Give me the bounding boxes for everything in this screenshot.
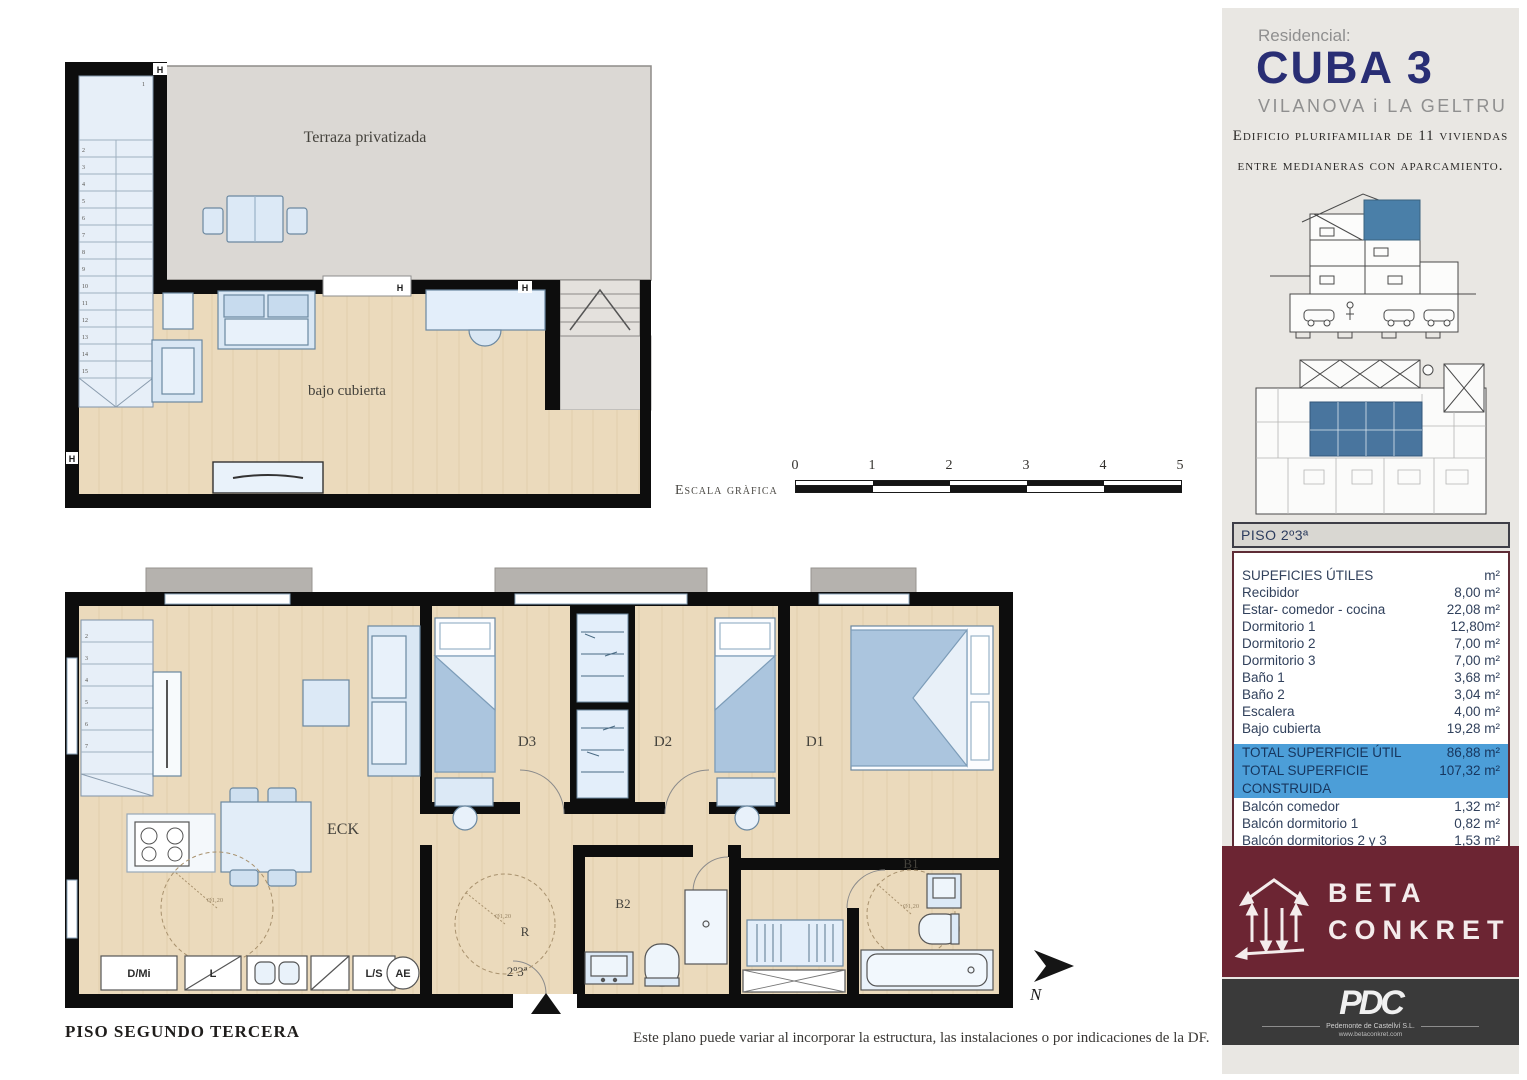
diameter-label: Ø1,20 xyxy=(495,913,511,920)
row-label: TOTAL SUPERFICIE ÚTIL xyxy=(1242,744,1402,762)
living-label: ECK xyxy=(327,821,359,838)
pdc-logo-block: PDC Pedemonte de Castellví S.L. www.beta… xyxy=(1222,979,1519,1045)
upper-floor-plan: 1 2 3 4 5 6 7 8 9 10 11 12 13 14 15 xyxy=(65,62,659,508)
row-label: Balcón comedor xyxy=(1242,798,1340,815)
scale-segment xyxy=(1104,481,1181,485)
scale-segment xyxy=(1104,486,1181,492)
bedroom3-label: D3 xyxy=(518,734,536,750)
scale-bar xyxy=(795,480,1182,493)
stair-number: 9 xyxy=(82,267,85,273)
graphic-scale: Escala gràfica 0 1 2 3 4 5 xyxy=(675,456,1190,500)
window xyxy=(165,594,290,604)
table-row: Estar- comedor - cocina22,08 m² xyxy=(1234,601,1508,618)
armchair xyxy=(152,340,202,402)
north-label: N xyxy=(1029,985,1043,1004)
stove xyxy=(135,822,189,866)
stair-number: 6 xyxy=(85,722,88,728)
divider xyxy=(1421,1026,1479,1027)
bed-d1 xyxy=(851,626,993,770)
project-name: CUBA 3 xyxy=(1256,42,1434,94)
corridor-wardrobe xyxy=(743,920,845,992)
appliance-label: L xyxy=(210,968,217,980)
scale-tick: 5 xyxy=(1170,458,1190,474)
stair-number: 11 xyxy=(82,301,88,307)
bedroom2-label: D2 xyxy=(654,734,672,750)
row-value: 4,00 m² xyxy=(1454,703,1500,720)
scale-segment xyxy=(1027,486,1104,492)
terrace-area xyxy=(153,66,651,280)
hinge-icon: H xyxy=(157,65,164,75)
table-row: Dormitorio 37,00 m² xyxy=(1234,652,1508,669)
stair-number: 2 xyxy=(82,148,85,154)
row-value: 7,00 m² xyxy=(1454,635,1500,652)
scale-tick: 3 xyxy=(1016,458,1036,474)
appliance-label: D/Mi xyxy=(127,968,150,980)
row-label: SUPEFICIES ÚTILES xyxy=(1242,567,1373,584)
stair-number: 7 xyxy=(82,233,85,239)
window xyxy=(67,658,77,754)
row-value: 107,32 m² xyxy=(1439,762,1500,798)
row-value: 1,32 m² xyxy=(1454,798,1500,815)
stair-number: 1 xyxy=(142,82,145,88)
plan-sheet: 1 2 3 4 5 6 7 8 9 10 11 12 13 14 15 xyxy=(0,0,1527,1080)
stair-number: 5 xyxy=(85,700,88,706)
table-row: Dormitorio 27,00 m² xyxy=(1234,635,1508,652)
page-title: PISO SEGUNDO TERCERA xyxy=(65,1022,300,1042)
pdc-subtitle-row: Pedemonte de Castellví S.L. xyxy=(1262,1023,1479,1030)
window xyxy=(67,880,77,938)
table-body: SUPEFICIES ÚTILESm² Recibidor8,00 m² Est… xyxy=(1232,551,1510,871)
living-staircase: 2 3 4 5 6 7 xyxy=(81,620,153,796)
bed-d2 xyxy=(715,618,775,772)
stair-number: 15 xyxy=(82,369,88,375)
dining-set xyxy=(221,788,311,886)
pdc-url: www.betaconkret.com xyxy=(1339,1031,1403,1038)
sofa xyxy=(218,291,315,349)
table-row: Dormitorio 112,80m² xyxy=(1234,618,1508,635)
key-plan-drawing xyxy=(1248,350,1493,522)
staircase: 1 2 3 4 5 6 7 8 9 10 11 12 13 14 15 xyxy=(79,76,153,407)
table-row: SUPEFICIES ÚTILESm² xyxy=(1234,567,1508,584)
row-label: Bajo cubierta xyxy=(1242,720,1321,737)
appliance-label: L/S xyxy=(365,968,382,980)
bed-d3 xyxy=(435,618,495,772)
pdc-logo: PDC xyxy=(1339,986,1402,1020)
unit-highlight-keyplan xyxy=(1310,402,1422,456)
diameter-label: Ø1,20 xyxy=(207,897,223,904)
coffee-table xyxy=(303,680,349,726)
north-arrow-icon xyxy=(1034,950,1074,982)
row-value: m² xyxy=(1484,567,1500,584)
scale-tick: 4 xyxy=(1093,458,1113,474)
stair-number: 14 xyxy=(82,352,88,358)
row-label: Dormitorio 2 xyxy=(1242,635,1316,652)
row-label: Estar- comedor - cocina xyxy=(1242,601,1385,618)
dining-table xyxy=(221,802,311,872)
divider xyxy=(1262,1026,1320,1027)
stair-number: 6 xyxy=(82,216,85,222)
beta-conkret-icon xyxy=(1232,864,1318,960)
row-label: Escalera xyxy=(1242,703,1295,720)
title-block-sidebar: Residencial: CUBA 3 VILANOVA i LA GELTRU… xyxy=(1222,8,1519,1074)
scale-segment xyxy=(1027,481,1104,485)
diameter-label: Ø1,20 xyxy=(903,903,919,910)
exterior-right xyxy=(560,336,651,410)
dining-chair xyxy=(230,870,258,886)
row-label: Balcón dormitorio 1 xyxy=(1242,815,1358,832)
terrace-label: Terraza privatizada xyxy=(304,129,427,146)
project-city: VILANOVA i LA GELTRU xyxy=(1258,96,1507,117)
table-row: Baño 23,04 m² xyxy=(1234,686,1508,703)
row-value: 22,08 m² xyxy=(1447,601,1500,618)
row-value: 12,80m² xyxy=(1450,618,1500,635)
unit-number-label: 2º3ª xyxy=(507,964,528,979)
surface-areas-table: PISO 2º3ª SUPEFICIES ÚTILESm² Recibidor8… xyxy=(1232,522,1510,871)
table-row: Recibidor8,00 m² xyxy=(1234,584,1508,601)
communal-stair xyxy=(560,280,640,336)
table-row: Baño 13,68 m² xyxy=(1234,669,1508,686)
row-label: Recibidor xyxy=(1242,584,1299,601)
stair-number: 13 xyxy=(82,335,88,341)
north-arrow: N xyxy=(1028,944,1082,1004)
living-sofa xyxy=(368,626,420,776)
bedroom1-label: D1 xyxy=(806,734,824,750)
scale-segment xyxy=(873,481,950,485)
table-row: Balcón dormitorio 10,82 m² xyxy=(1234,815,1508,832)
scale-segment xyxy=(950,486,1027,492)
tv-cabinet xyxy=(213,462,323,493)
scale-tick: 2 xyxy=(939,458,959,474)
attic-room-label: bajo cubierta xyxy=(308,383,386,399)
scale-tick: 0 xyxy=(785,458,805,474)
stair-number: 8 xyxy=(82,250,85,256)
attic-floor-ext xyxy=(545,410,640,494)
stair-number: 4 xyxy=(85,678,88,684)
row-value: 8,00 m² xyxy=(1454,584,1500,601)
project-description-line1: Edificio plurifamiliar de 11 viviendas xyxy=(1222,128,1519,145)
total-built-row: TOTAL SUPERFICIE CONSTRUIDA107,32 m² xyxy=(1234,762,1508,798)
row-value: 86,88 m² xyxy=(1447,744,1500,762)
beta-conkret-logo: BETA CONKRET xyxy=(1222,846,1519,977)
dining-chair xyxy=(268,870,296,886)
disclaimer-text: Este plano puede variar al incorporar la… xyxy=(633,1030,1218,1047)
hinge-icon: H xyxy=(69,454,76,464)
row-label: Dormitorio 1 xyxy=(1242,618,1316,635)
pdc-subtitle: Pedemonte de Castellví S.L. xyxy=(1326,1023,1415,1030)
kitchen-counter xyxy=(127,814,215,872)
side-table xyxy=(163,293,193,329)
unit-highlight-section xyxy=(1364,200,1420,240)
stair-number: 3 xyxy=(85,656,88,662)
scale-segment xyxy=(796,486,873,492)
row-label: Baño 2 xyxy=(1242,686,1285,703)
row-label: Baño 1 xyxy=(1242,669,1285,686)
stair-number: 2 xyxy=(85,634,88,640)
row-value: 3,68 m² xyxy=(1454,669,1500,686)
table-row: Escalera4,00 m² xyxy=(1234,703,1508,720)
stair-number: 7 xyxy=(85,744,88,750)
stair-number: 5 xyxy=(82,199,85,205)
window xyxy=(515,594,687,604)
total-useful-row: TOTAL SUPERFICIE ÚTIL86,88 m² xyxy=(1234,744,1508,762)
tall-cabinet xyxy=(153,672,181,776)
table-header: PISO 2º3ª xyxy=(1232,522,1510,548)
scale-segment xyxy=(950,481,1027,485)
building-section-drawing xyxy=(1262,176,1482,348)
stair-number: 4 xyxy=(82,182,85,188)
row-value: 3,04 m² xyxy=(1454,686,1500,703)
scale-segment xyxy=(873,486,950,492)
scale-label: Escala gràfica xyxy=(675,483,778,499)
scale-segment xyxy=(796,481,873,485)
stair-number: 12 xyxy=(82,318,88,324)
row-value: 19,28 m² xyxy=(1447,720,1500,737)
beta-line1: BETA xyxy=(1328,875,1511,911)
hinge-icon: H xyxy=(397,283,404,293)
beta-line2: CONKRET xyxy=(1328,912,1511,948)
row-label: Dormitorio 3 xyxy=(1242,652,1316,669)
row-label: TOTAL SUPERFICIE CONSTRUIDA xyxy=(1242,762,1439,798)
stair-number: 10 xyxy=(82,284,88,290)
window xyxy=(819,594,909,604)
scale-tick: 1 xyxy=(862,458,882,474)
row-value: 0,82 m² xyxy=(1454,815,1500,832)
bath2-label: B2 xyxy=(615,896,630,911)
lower-floor-plan: 2 3 4 5 6 7 xyxy=(65,562,1013,1014)
hall-label: R xyxy=(521,924,530,939)
project-description-line2: entre medianeras con aparcamiento. xyxy=(1222,158,1519,175)
appliance-label: AE xyxy=(395,968,410,980)
table-row: Balcón comedor1,32 m² xyxy=(1234,798,1508,815)
hinge-icon: H xyxy=(522,283,529,293)
table-row: Bajo cubierta19,28 m² xyxy=(1234,720,1508,737)
bath1-label: B1 xyxy=(903,856,918,871)
stair-number: 3 xyxy=(82,165,85,171)
row-value: 7,00 m² xyxy=(1454,652,1500,669)
